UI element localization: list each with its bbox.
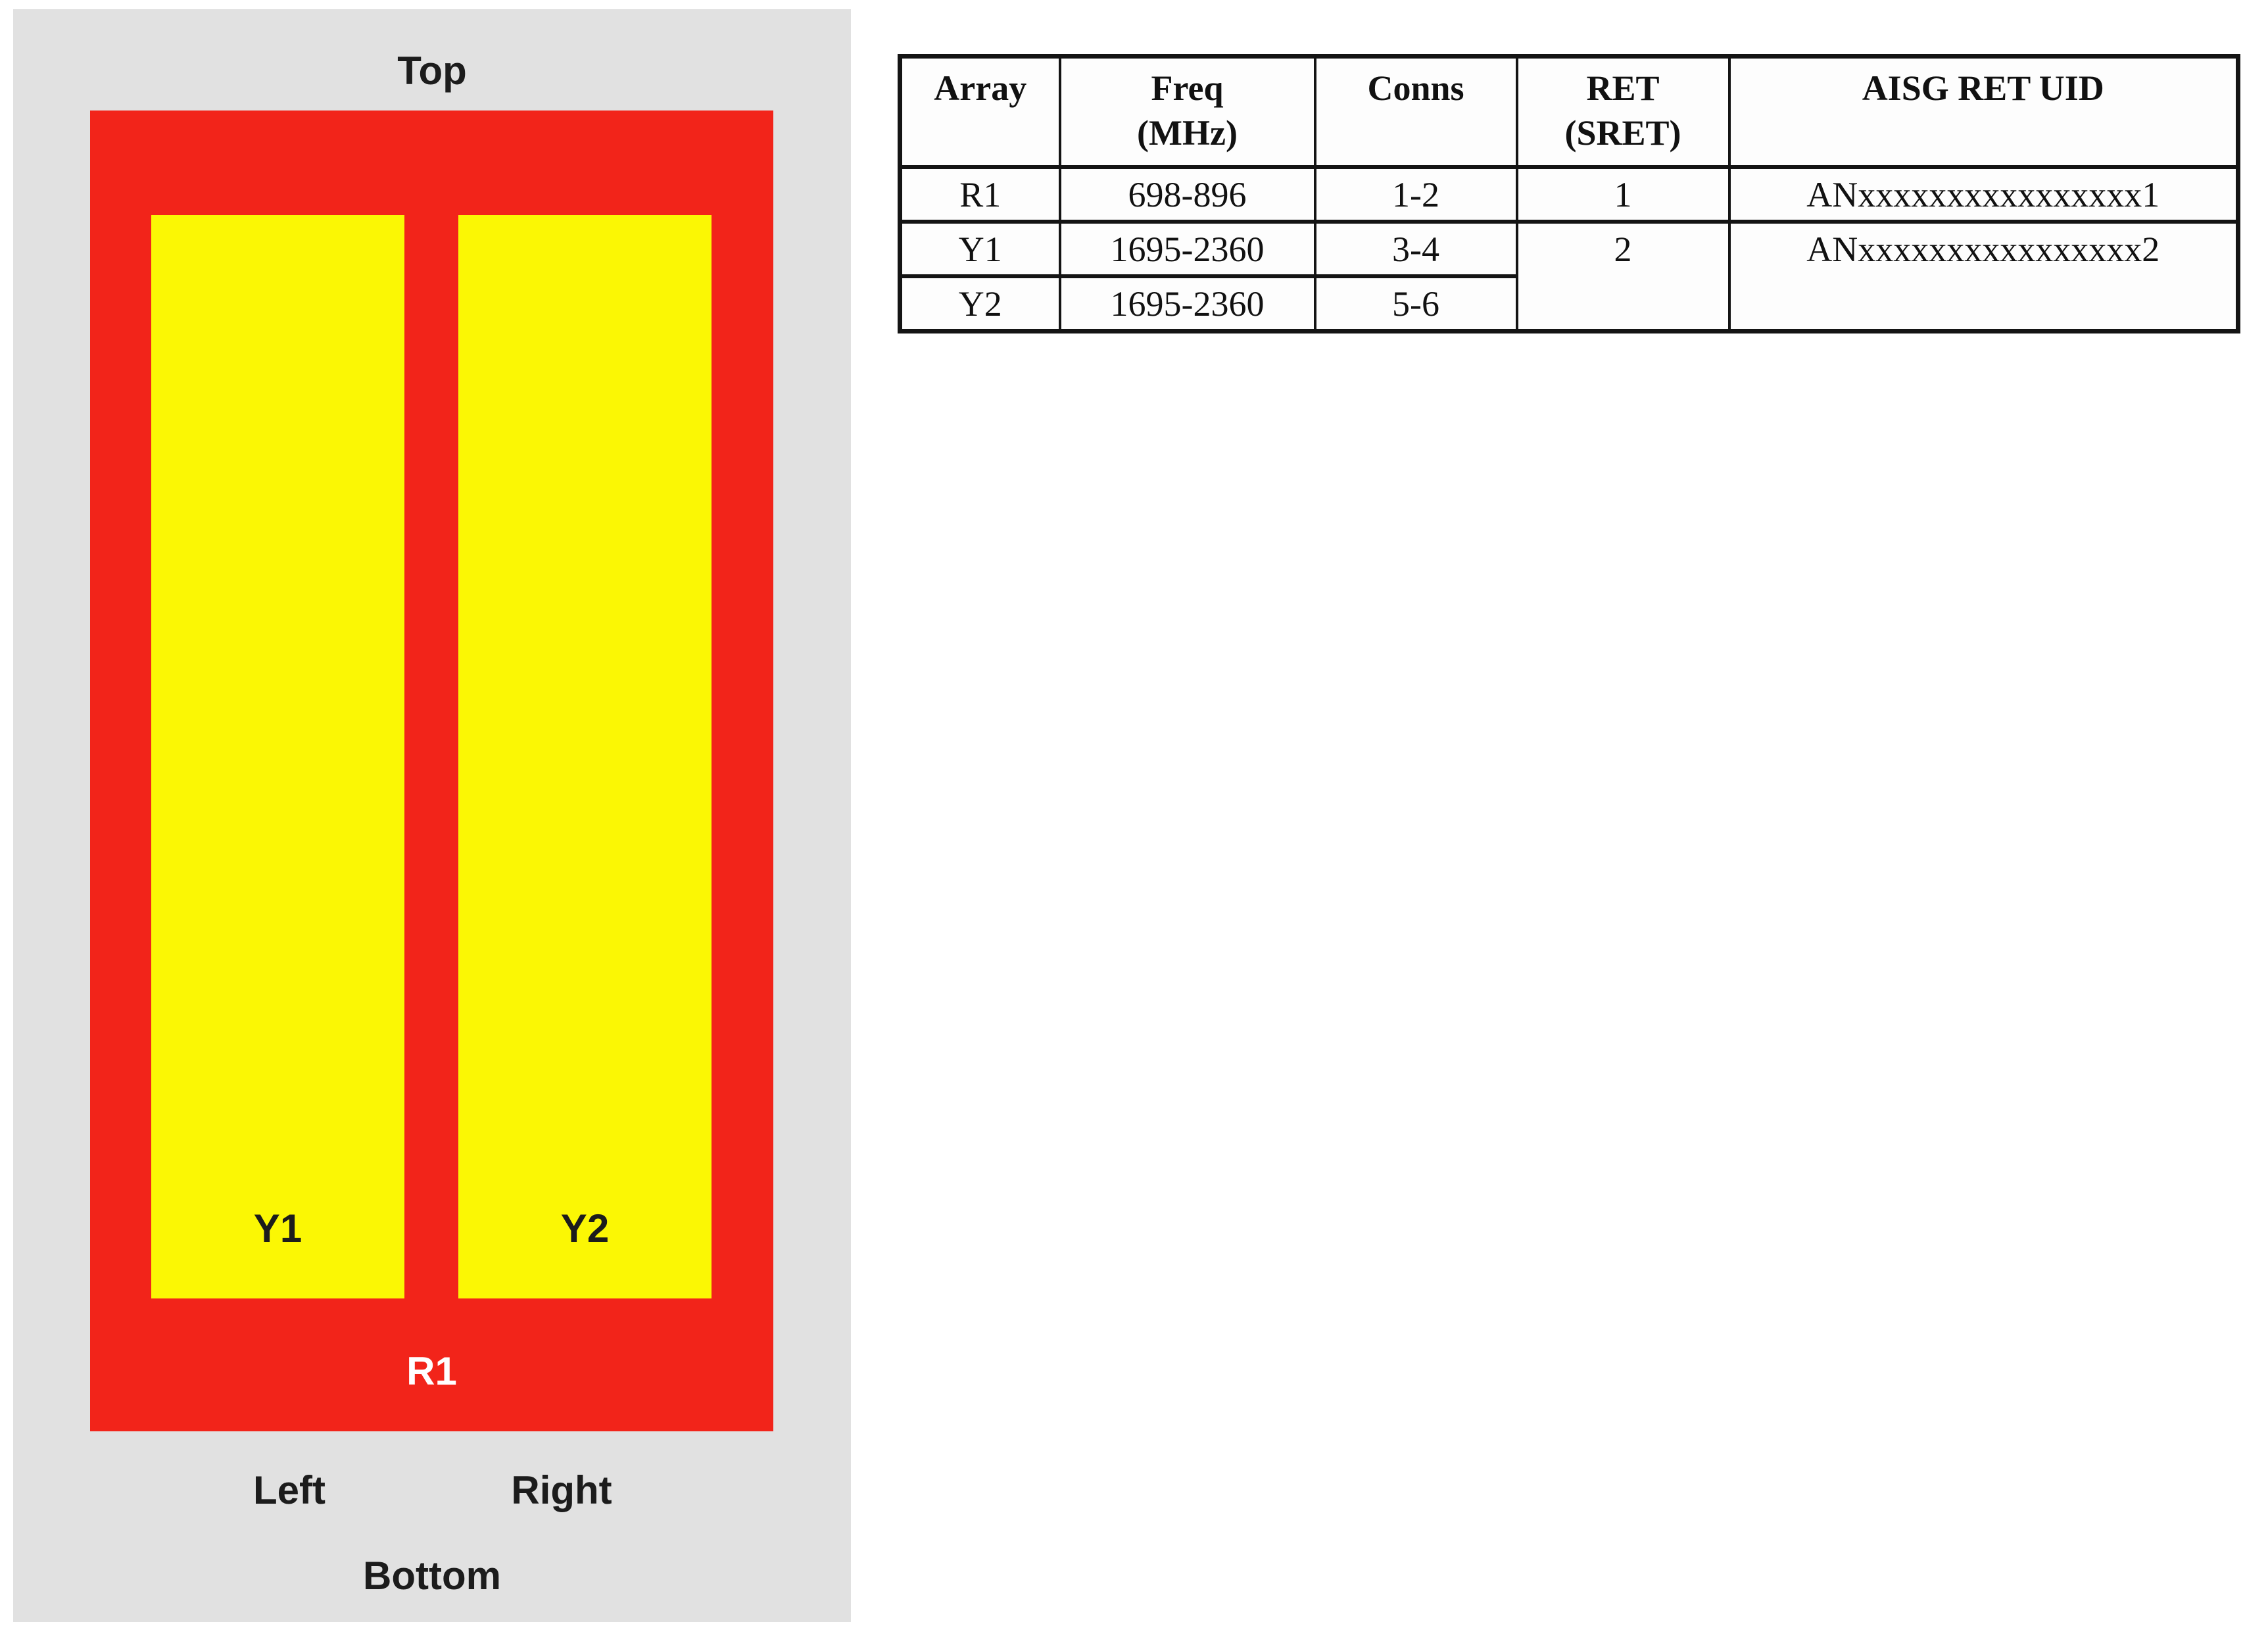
table-header-row: Array Freq(MHz) Conns RET(SRET) AISG RET…: [900, 57, 2238, 168]
label-left-edge: Left: [224, 1471, 355, 1510]
col-header-freq: Freq(MHz): [1060, 57, 1315, 168]
label-array-r1: R1: [90, 1352, 773, 1391]
col-header-array: Array: [900, 57, 1060, 168]
label-array-y2: Y2: [458, 1209, 712, 1248]
page-canvas: Top Y1 Y2 R1 Left Right Bottom Array Fre…: [0, 0, 2268, 1628]
cell-r1-freq: 698-896: [1060, 167, 1315, 222]
cell-y2-array: Y2: [900, 276, 1060, 332]
array-y1-region: [151, 215, 404, 1298]
label-array-y1: Y1: [151, 1209, 404, 1248]
label-bottom-edge: Bottom: [13, 1556, 851, 1596]
table-row-y1: Y1 1695-2360 3-4 2 ANxxxxxxxxxxxxxxxx2: [900, 222, 2238, 276]
col-header-freq-line2: (MHz): [1137, 113, 1238, 153]
ret-config-table: Array Freq(MHz) Conns RET(SRET) AISG RET…: [898, 54, 2240, 333]
cell-y2-freq: 1695-2360: [1060, 276, 1315, 332]
table-row-r1: R1 698-896 1-2 1 ANxxxxxxxxxxxxxxxx1: [900, 167, 2238, 222]
cell-y1-freq: 1695-2360: [1060, 222, 1315, 276]
col-header-uid: AISG RET UID: [1729, 57, 2238, 168]
cell-y1-y2-uid: ANxxxxxxxxxxxxxxxx2: [1729, 222, 2238, 332]
cell-y1-conns: 3-4: [1315, 222, 1517, 276]
cell-r1-array: R1: [900, 167, 1060, 222]
col-header-conns: Conns: [1315, 57, 1517, 168]
cell-y2-conns: 5-6: [1315, 276, 1517, 332]
col-header-ret-line1: RET: [1586, 68, 1659, 108]
cell-y1-array: Y1: [900, 222, 1060, 276]
label-right-edge: Right: [496, 1471, 627, 1510]
cell-r1-ret: 1: [1517, 167, 1729, 222]
cell-y1-y2-ret: 2: [1517, 222, 1729, 332]
cell-r1-uid: ANxxxxxxxxxxxxxxxx1: [1729, 167, 2238, 222]
col-header-ret: RET(SRET): [1517, 57, 1729, 168]
col-header-ret-line2: (SRET): [1564, 113, 1681, 153]
col-header-freq-line1: Freq: [1151, 68, 1224, 108]
cell-r1-conns: 1-2: [1315, 167, 1517, 222]
label-top-edge: Top: [13, 51, 851, 91]
array-y2-region: [458, 215, 712, 1298]
